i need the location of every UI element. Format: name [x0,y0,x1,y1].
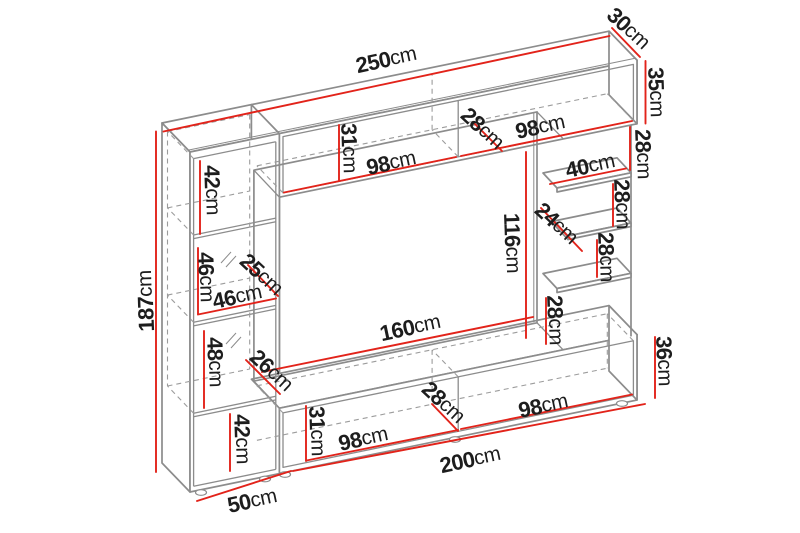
dim-label-left-bottom-compartment: 42cm [230,414,257,465]
dim-label-left-top-compartment: 42cm [200,165,227,216]
dim-label-top-opening-height: 31cm [337,123,364,174]
foot [196,490,207,496]
left-side-panel [162,123,190,492]
wall-unit-dimension-diagram: 250cm 30cm 35cm 28cm 98cm 28cm 31cm 98cm… [0,0,800,533]
dim-label-left-column-width: 50cm [225,483,279,518]
dim-label-total-height: 187cm [131,270,158,332]
diagram-page: 250cm 30cm 35cm 28cm 98cm 28cm 31cm 98cm… [0,0,800,533]
dim-label-gap-shelf-a-b: 28cm [610,179,637,230]
dim-label-bench-height: 36cm [652,336,679,387]
dim-label-bench-opening-height: 31cm [305,406,332,457]
dim-label-tv-height: 116cm [499,212,526,273]
foot [617,401,628,407]
dim-label-bench-length: 200cm [437,440,502,477]
dim-label-gap-below-top-cabinet: 28cm [631,129,658,180]
dim-label-gap-shelf-b-c: 28cm [594,232,621,283]
dim-label-gap-shelf-c-bench: 28cm [543,295,570,346]
dim-label-top-cabinet-height: 35cm [644,67,671,118]
dim-label-tv-width: 160cm [377,308,442,345]
dim-label-left-lower-compartment: 48cm [203,337,230,388]
